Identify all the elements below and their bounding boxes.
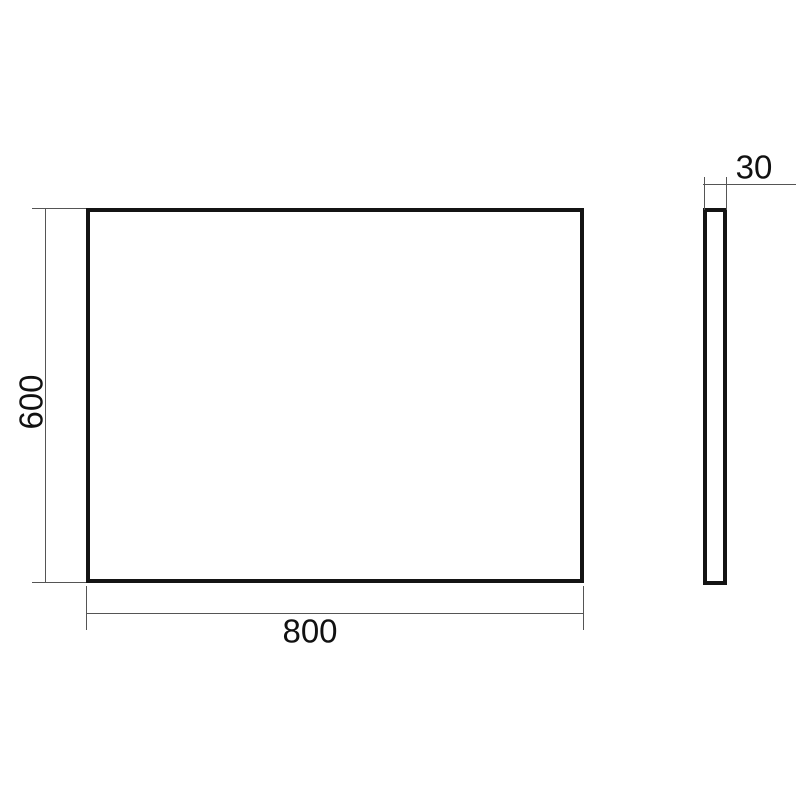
depth-extension-line-left (704, 177, 705, 210)
depth-extension-line-right (726, 177, 727, 210)
width-extension-line-left (86, 586, 87, 630)
height-extension-line-bottom (32, 582, 86, 583)
side-view-outline (703, 208, 727, 585)
front-view-outline (86, 208, 584, 583)
technical-drawing-canvas: 600 800 30 (0, 0, 800, 800)
depth-dimension-label: 30 (736, 151, 773, 184)
width-extension-line-right (583, 586, 584, 630)
height-extension-line-top (32, 208, 86, 209)
width-dimension-label: 800 (282, 615, 337, 648)
height-dimension-label: 600 (15, 374, 48, 429)
